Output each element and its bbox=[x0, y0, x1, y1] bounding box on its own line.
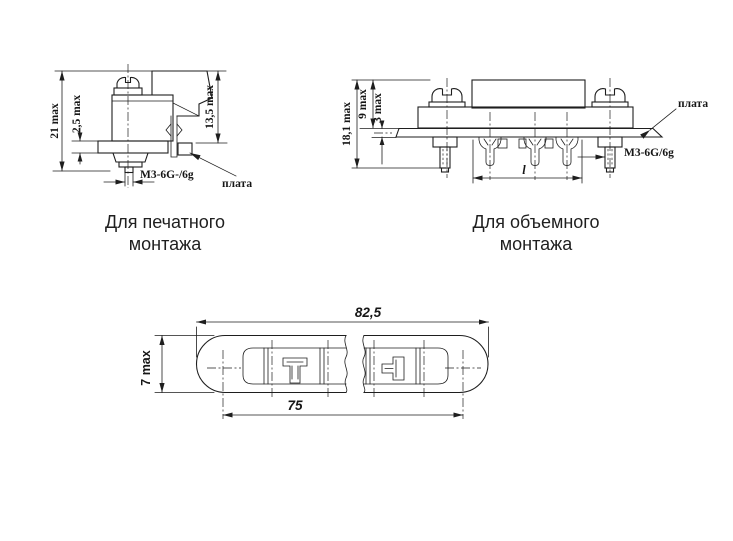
washer bbox=[119, 162, 142, 167]
contact-pin-spring bbox=[166, 124, 182, 136]
dim-13-5-max: 13,5 max bbox=[196, 71, 227, 143]
cavity-right bbox=[364, 348, 448, 384]
dim-thread-wire: М3-6G/6g bbox=[578, 147, 674, 160]
board-leader-pcb: плата bbox=[189, 151, 253, 190]
dim-length-l: l bbox=[473, 140, 582, 183]
dim-82-5-label: 82,5 bbox=[355, 305, 382, 320]
dim-13-5-max-label: 13,5 max bbox=[204, 85, 216, 129]
wire-mount-view: 18,1 max 9 max 3 max l bbox=[341, 78, 708, 183]
left-stud bbox=[440, 147, 450, 168]
board-label-wire: плата bbox=[678, 98, 708, 110]
cavity-left bbox=[243, 348, 346, 384]
rear-shell bbox=[152, 71, 212, 116]
right-hole-axis bbox=[445, 350, 481, 419]
dim-21-max-label: 21 max bbox=[49, 103, 61, 139]
rear-shell-slant bbox=[173, 103, 199, 116]
left-stud-tip bbox=[442, 168, 449, 172]
dim-3-max-label: 3 max bbox=[372, 93, 384, 123]
dim-9-max-label: 9 max bbox=[357, 89, 369, 119]
pcb-mount-view: 21 max 2,5 max 13,5 max М3-6G-/6g bbox=[49, 64, 252, 190]
board-label-pcb: плата bbox=[222, 178, 252, 190]
dim-18-1-max-label: 18,1 max bbox=[341, 102, 353, 146]
dim-2-5-max: 2,5 max bbox=[71, 95, 98, 164]
thread-label-wire: М3-6G/6g bbox=[624, 147, 674, 159]
wire-pin-centerlines bbox=[490, 112, 567, 180]
wire-caption-line2: монтажа bbox=[500, 234, 573, 254]
dim-thread-pcb: М3-6G-/6g bbox=[104, 169, 194, 186]
flange bbox=[98, 141, 168, 153]
captions: Для печатного монтажа Для объемного монт… bbox=[105, 212, 599, 254]
hood bbox=[472, 80, 585, 108]
threaded-stud bbox=[125, 167, 133, 173]
pcb-caption-line1: Для печатного bbox=[105, 212, 225, 232]
technical-drawing-page: 21 max 2,5 max 13,5 max М3-6G-/6g bbox=[0, 0, 733, 541]
technical-drawing: 21 max 2,5 max 13,5 max М3-6G-/6g bbox=[0, 0, 733, 541]
dim-7-max: 7 max bbox=[139, 336, 214, 393]
top-view: 82,5 7 max 75 bbox=[139, 305, 489, 419]
board-leader-wire: плата bbox=[640, 98, 708, 139]
dim-75-label: 75 bbox=[287, 398, 303, 413]
contact-right-detail bbox=[385, 360, 396, 377]
contact-left-detail bbox=[287, 362, 303, 379]
left-stud-thread bbox=[443, 149, 447, 166]
dim-length-label: l bbox=[522, 163, 526, 177]
pcb-caption-line2: монтажа bbox=[129, 234, 202, 254]
cavity-left-dividers bbox=[264, 348, 324, 384]
connector-body bbox=[112, 95, 173, 141]
contact-pin bbox=[171, 116, 177, 157]
contact-tab-1 bbox=[498, 139, 507, 148]
thread-label-pcb: М3-6G-/6g bbox=[140, 169, 194, 181]
pcb-connector-outline bbox=[98, 71, 212, 173]
dim-7-max-label: 7 max bbox=[139, 350, 153, 385]
dim-2-5-max-label: 2,5 max bbox=[71, 95, 83, 134]
dim-75: 75 bbox=[223, 398, 463, 418]
dim-18-1-max: 18,1 max bbox=[341, 80, 440, 168]
left-stud-bush bbox=[433, 137, 457, 147]
flange bbox=[418, 107, 633, 128]
left-hole-axis bbox=[207, 350, 241, 419]
wire-caption-line1: Для объемного bbox=[473, 212, 600, 232]
cavity-right-axes bbox=[374, 340, 424, 398]
nut bbox=[113, 153, 148, 162]
wire-connector-outline bbox=[396, 80, 662, 172]
board-strip bbox=[396, 129, 662, 138]
